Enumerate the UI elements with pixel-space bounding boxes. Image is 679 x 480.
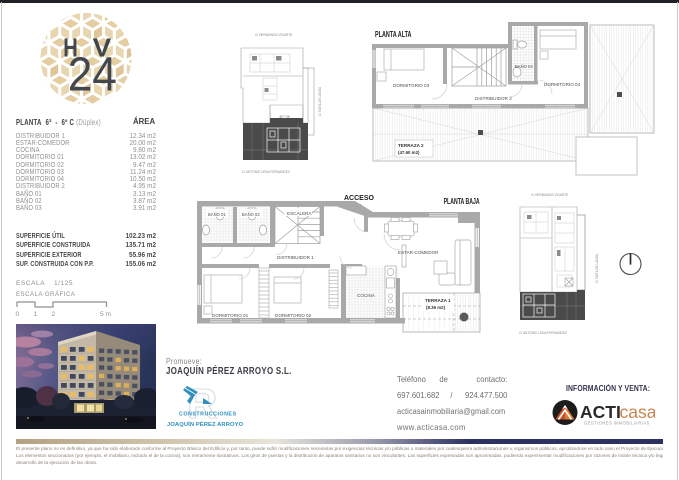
svg-text:R: R (187, 380, 217, 427)
svg-text:(47.60 m2): (47.60 m2) (398, 150, 420, 155)
svg-text:C/ MATILDE LANDA: C/ MATILDE LANDA (595, 253, 599, 283)
svg-text:BAÑO 03: BAÑO 03 (515, 64, 533, 69)
svg-text:C/ HERMANOS VIGARTE: C/ HERMANOS VIGARTE (531, 193, 568, 197)
svg-text:24: 24 (68, 49, 117, 102)
svg-text:GESTIONES INMOBILIARIAS: GESTIONES INMOBILIARIAS (584, 421, 650, 426)
svg-text:TERRAZA 1: TERRAZA 1 (425, 298, 451, 303)
svg-text:(8.36 m2): (8.36 m2) (426, 305, 446, 310)
svg-text:ACCESO: ACCESO (344, 193, 374, 202)
svg-text:JOAQUÍN PÉREZ ARROYO: JOAQUÍN PÉREZ ARROYO (167, 420, 244, 428)
svg-text:C/ ANTONIO LENA FERNANDEZ: C/ ANTONIO LENA FERNANDEZ (242, 170, 290, 174)
svg-text:casa: casa (620, 402, 656, 422)
svg-text:DORMITORIO 04: DORMITORIO 04 (544, 82, 581, 87)
svg-text:DISTRIBUIDOR 1: DISTRIBUIDOR 1 (277, 255, 314, 260)
svg-text:2: 2 (52, 311, 56, 318)
svg-text:5 m: 5 m (100, 311, 111, 318)
svg-text:DORMITORIO 02: DORMITORIO 02 (275, 313, 312, 318)
svg-text:1: 1 (34, 311, 38, 318)
svg-text:TERRAZA 2: TERRAZA 2 (398, 143, 424, 148)
svg-text:ESTAR-COMEDOR: ESTAR-COMEDOR (398, 250, 439, 255)
svg-text:ESCALERA: ESCALERA (287, 211, 312, 216)
svg-text:0: 0 (16, 311, 20, 318)
svg-text:DORMITORIO 03: DORMITORIO 03 (393, 83, 430, 88)
svg-text:CONSTRUCCIONES: CONSTRUCCIONES (179, 412, 237, 418)
svg-text:C/ MATILDE LANDA: C/ MATILDE LANDA (318, 86, 322, 116)
svg-text:C/ HERMANOS VIGARTE: C/ HERMANOS VIGARTE (255, 33, 292, 37)
svg-text:PLANTA ALTA: PLANTA ALTA (375, 30, 412, 39)
svg-text:BAÑO 02: BAÑO 02 (242, 212, 260, 217)
svg-text:PLANTA BAJA: PLANTA BAJA (444, 197, 480, 206)
svg-text:COCINA: COCINA (357, 293, 376, 298)
svg-text:ACTI: ACTI (580, 402, 621, 422)
svg-text:C/ ANTONIO LENA FERNÁNDEZ: C/ ANTONIO LENA FERNÁNDEZ (519, 331, 567, 335)
svg-text:BAÑO 01: BAÑO 01 (208, 212, 226, 217)
svg-text:DORMITORIO 01: DORMITORIO 01 (212, 313, 249, 318)
svg-text:DISTRIBUIDOR 2: DISTRIBUIDOR 2 (475, 96, 512, 101)
